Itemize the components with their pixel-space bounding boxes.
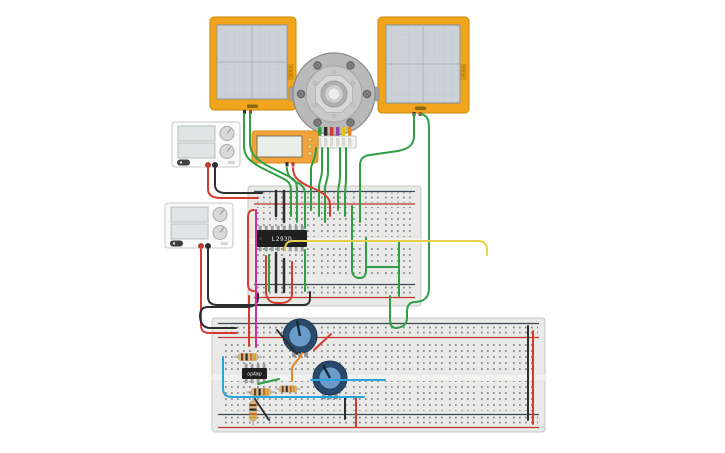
band-3 <box>263 389 265 396</box>
band-1 <box>241 354 243 361</box>
motor-wire-stub-6 <box>348 127 351 137</box>
band-2 <box>286 386 288 392</box>
power-supply-1[interactable] <box>172 122 240 168</box>
band-3 <box>290 386 292 392</box>
rail-holes[interactable] <box>220 325 538 335</box>
wire-green-8[interactable] <box>345 148 346 216</box>
circuit-canvas: L293D opAmp <box>0 0 725 453</box>
rail-holes[interactable] <box>256 193 414 203</box>
lcd-buttons[interactable] <box>308 137 312 155</box>
motor-wire-stub-1 <box>318 127 321 137</box>
power-button-dot <box>180 161 182 163</box>
band-1 <box>254 389 256 396</box>
brand-mark <box>228 161 235 164</box>
motor-wire-stub-4 <box>336 127 339 137</box>
power-button[interactable] <box>177 160 190 166</box>
band-4 <box>250 417 257 419</box>
lcd-pin-positive[interactable] <box>292 162 295 167</box>
voltage-display <box>178 126 215 141</box>
motor-wire-stub-3 <box>330 127 333 137</box>
oscilloscope-label <box>415 107 426 111</box>
motor-wire-stub-5 <box>342 127 345 137</box>
resistor-2[interactable] <box>247 389 275 396</box>
resistor-3[interactable] <box>275 386 300 392</box>
terminal-holes-top[interactable] <box>221 343 533 373</box>
resistor-1[interactable] <box>234 354 262 361</box>
band-4 <box>267 389 269 396</box>
band-4 <box>293 386 295 392</box>
time-division-knob[interactable] <box>461 64 467 80</box>
power-button-dot <box>173 242 175 244</box>
lcd-screen <box>257 136 302 157</box>
band-1 <box>250 404 257 406</box>
power-supply-2[interactable] <box>165 203 233 249</box>
rail-holes[interactable] <box>256 286 414 296</box>
voltage-display <box>171 207 208 222</box>
band-2 <box>250 409 257 411</box>
brand-mark <box>221 242 228 245</box>
oscilloscope-right[interactable] <box>378 17 469 116</box>
terminal-holes-bottom[interactable] <box>256 245 416 275</box>
lcd-pin-negative[interactable] <box>286 162 289 167</box>
oscilloscope-label <box>247 105 258 109</box>
current-display <box>171 224 208 239</box>
band-3 <box>250 354 252 361</box>
ic-notch <box>259 237 262 240</box>
oscilloscope-left[interactable] <box>210 17 296 114</box>
ic-label: opAmp <box>247 372 262 378</box>
band-2 <box>259 389 261 396</box>
motor-wire-stub-2 <box>324 127 327 137</box>
current-display <box>178 143 215 158</box>
time-division-knob[interactable] <box>288 64 294 80</box>
band-1 <box>282 386 284 392</box>
band-2 <box>246 354 248 361</box>
band-3 <box>250 413 257 415</box>
motor-shaft <box>328 88 340 100</box>
power-button[interactable] <box>170 241 183 247</box>
encoder-motor[interactable] <box>289 53 379 135</box>
band-4 <box>254 354 256 361</box>
